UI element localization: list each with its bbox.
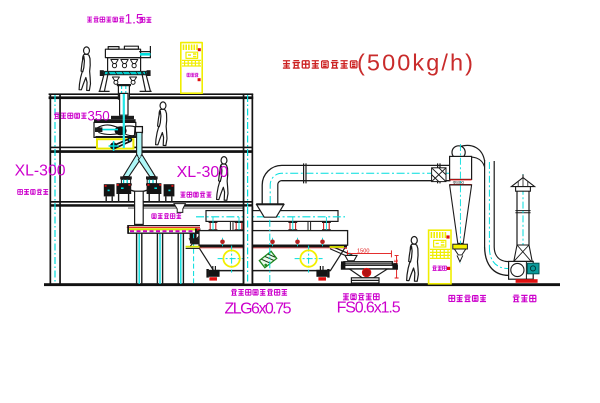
svg-text:XL-300: XL-300: [15, 163, 66, 180]
svg-text:350: 350: [87, 109, 109, 124]
svg-text:1.5: 1.5: [125, 12, 144, 27]
svg-text:(500kg/h): (500kg/h): [357, 50, 473, 76]
svg-text:1500: 1500: [357, 249, 369, 255]
svg-text:XL-300: XL-300: [177, 164, 229, 181]
svg-text:Φ800: Φ800: [453, 180, 465, 185]
svg-text:ZLG6x0.75: ZLG6x0.75: [225, 301, 292, 318]
svg-text:FS0.6x1.5: FS0.6x1.5: [337, 300, 401, 317]
